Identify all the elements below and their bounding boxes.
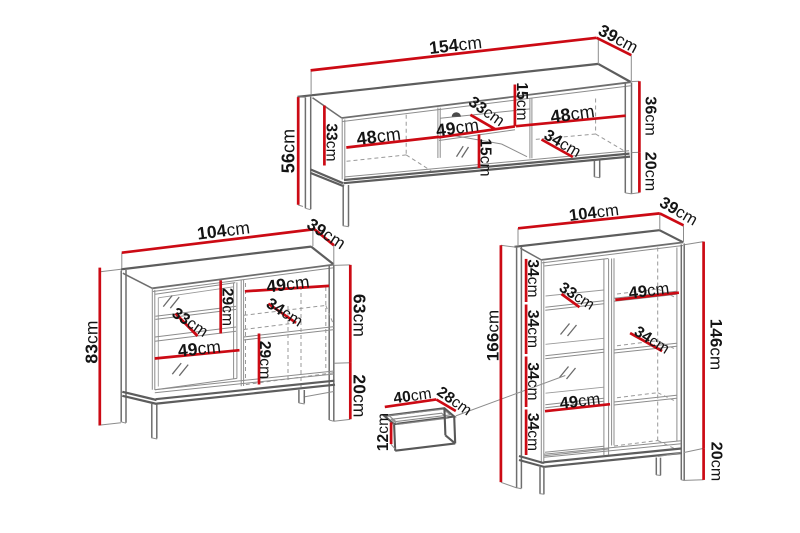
svg-text:15cm: 15cm (514, 82, 531, 120)
svg-text:34cm: 34cm (524, 362, 541, 400)
svg-text:36cm: 36cm (642, 96, 659, 136)
svg-text:12cm: 12cm (375, 413, 392, 451)
svg-text:34cm: 34cm (524, 259, 541, 297)
svg-text:83cm: 83cm (82, 320, 102, 363)
svg-text:29cm: 29cm (257, 341, 274, 379)
svg-text:15cm: 15cm (477, 138, 494, 176)
svg-text:166cm: 166cm (483, 310, 502, 362)
svg-text:34cm: 34cm (524, 413, 541, 451)
svg-text:146cm: 146cm (707, 319, 726, 371)
svg-text:20cm: 20cm (708, 442, 725, 482)
svg-text:34cm: 34cm (524, 310, 541, 348)
svg-text:20cm: 20cm (350, 374, 370, 417)
svg-text:33cm: 33cm (323, 123, 340, 161)
svg-text:20cm: 20cm (642, 152, 659, 192)
svg-text:29cm: 29cm (219, 288, 236, 326)
svg-text:63cm: 63cm (350, 294, 370, 337)
svg-text:56cm: 56cm (279, 129, 299, 173)
